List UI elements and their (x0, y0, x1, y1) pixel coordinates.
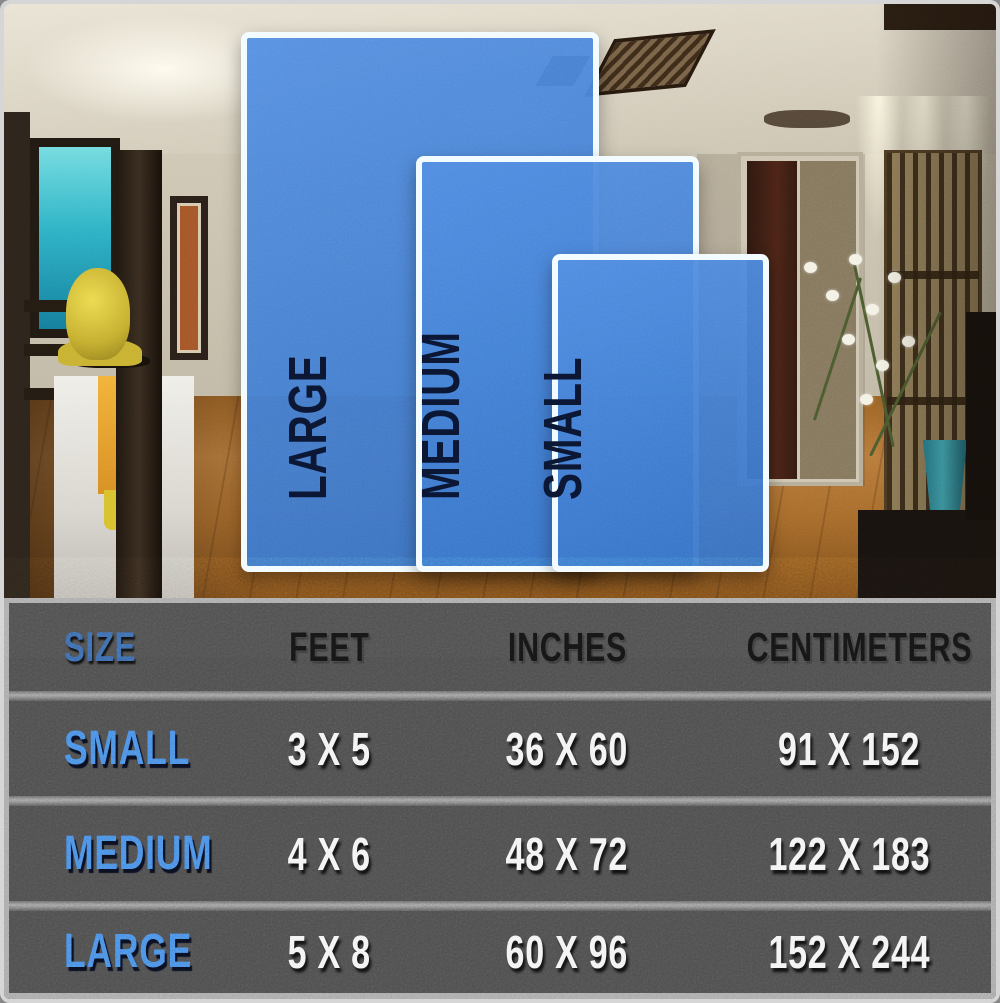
centimeters-value-large: 152 X 244 (768, 929, 930, 975)
feet-value-large: 5 X 8 (287, 929, 370, 975)
buddha-statue (66, 268, 130, 360)
row-divider (9, 796, 991, 806)
rug-size-label-medium: MEDIUM (414, 331, 468, 500)
rug-overlay-small: SMALL (552, 254, 769, 572)
centimeters-value-medium: 122 X 183 (768, 831, 930, 877)
row-divider (9, 901, 991, 911)
shadow-overlay (876, 4, 996, 598)
rug-size-chart-poster: LARGE MEDIUM SMALL SIZE FEET INCHES CENT… (0, 0, 1000, 1003)
column-header-centimeters: CENTIMETERS (747, 627, 973, 668)
table-header-row: SIZE FEET INCHES CENTIMETERS (9, 603, 991, 691)
inches-value-large: 60 X 96 (506, 929, 629, 975)
size-value-small: SMALL (64, 725, 190, 773)
column-header-feet: FEET (289, 627, 370, 668)
size-value-medium: MEDIUM (64, 830, 212, 878)
table-row-medium: MEDIUM 4 X 6 48 X 72 122 X 183 (9, 806, 991, 901)
size-value-large: LARGE (64, 928, 192, 976)
inches-value-small: 36 X 60 (506, 726, 629, 772)
table-row-small: SMALL 3 X 5 36 X 60 91 X 152 (9, 701, 991, 796)
row-divider (9, 691, 991, 701)
orchid-flower (860, 394, 873, 405)
orchid-flower (842, 334, 855, 345)
feet-value-small: 3 X 5 (287, 726, 370, 772)
rug-size-label-small: SMALL (536, 357, 590, 500)
column-header-inches: INCHES (507, 627, 626, 668)
table-row-large: LARGE 5 X 8 60 X 96 152 X 244 (9, 911, 991, 993)
room-photo: LARGE MEDIUM SMALL (4, 4, 996, 598)
inches-value-medium: 48 X 72 (506, 831, 629, 877)
orchid-flower (804, 262, 817, 273)
wall-picture (170, 196, 208, 360)
shelf-post (116, 150, 162, 598)
ceiling-vent (764, 110, 850, 128)
orchid-flower (849, 254, 862, 265)
orchid-flower (826, 290, 839, 301)
size-table: SIZE FEET INCHES CENTIMETERS SMALL 3 X 5… (4, 598, 996, 999)
rug-size-label-large: LARGE (281, 355, 335, 501)
feet-value-medium: 4 X 6 (287, 831, 370, 877)
column-header-size: SIZE (64, 626, 136, 668)
centimeters-value-small: 91 X 152 (778, 726, 920, 772)
